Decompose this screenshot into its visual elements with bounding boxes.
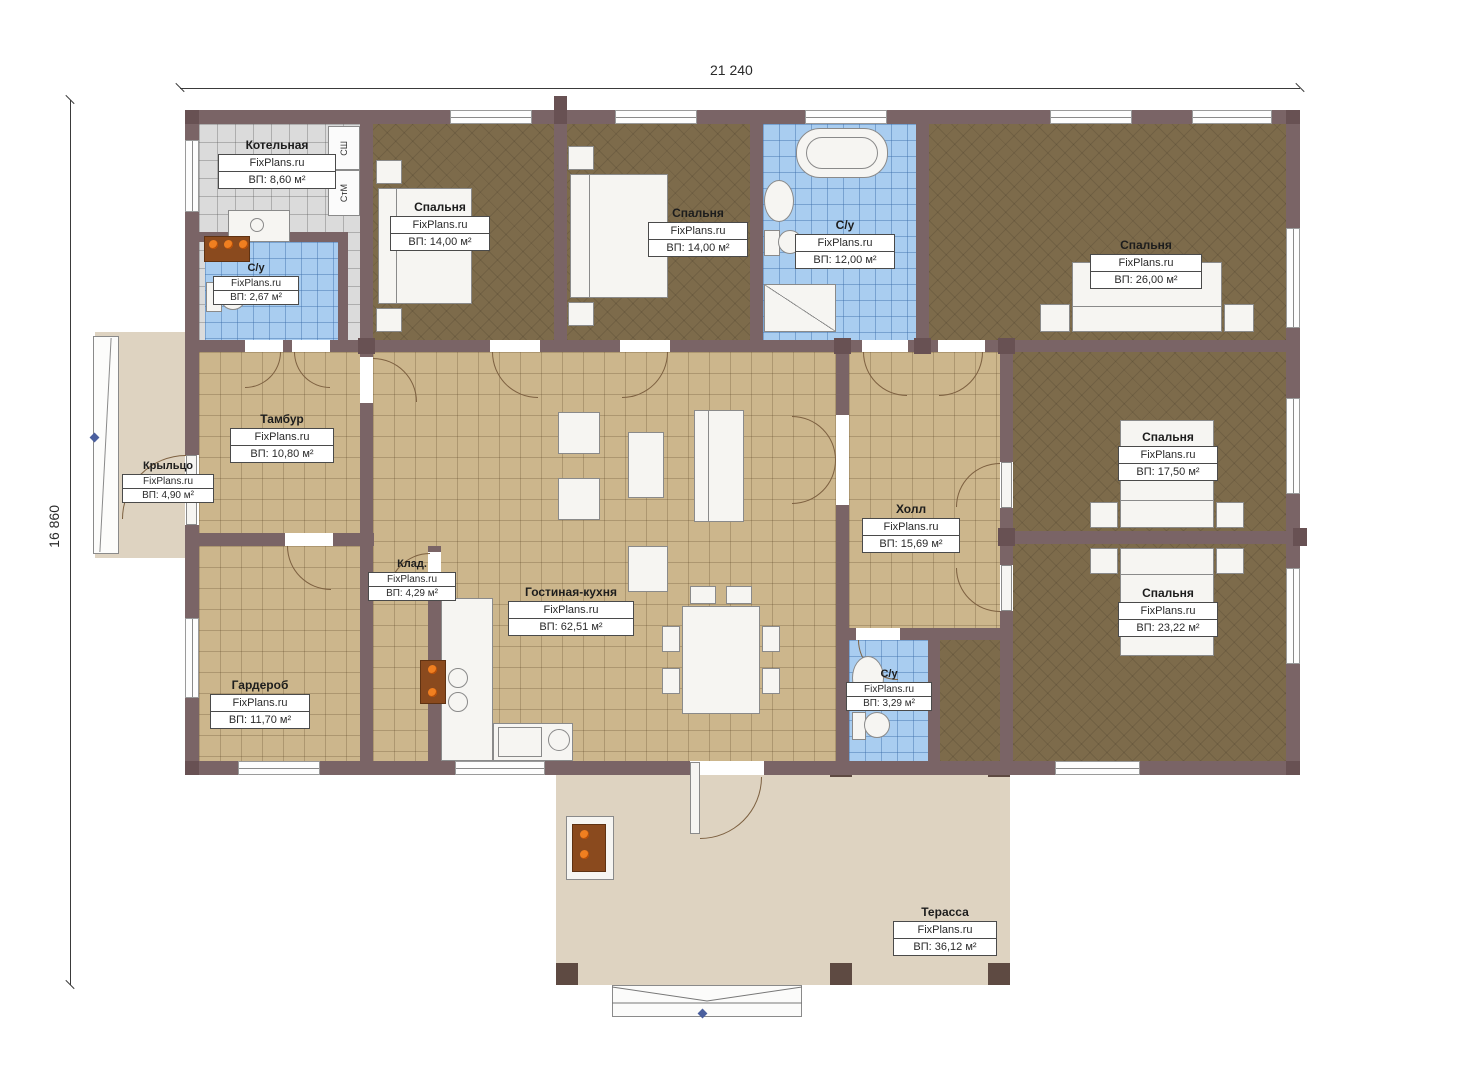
wall-post (1286, 110, 1300, 124)
wall-post (554, 96, 567, 124)
room-info-box: FixPlans.ru ВП: 26,00 м² (1090, 254, 1202, 289)
room-label-storage: Клад. FixPlans.ru ВП: 4,29 м² (368, 558, 456, 601)
room-label-terrace: Терасса FixPlans.ru ВП: 36,12 м² (893, 905, 997, 956)
room-name: Котельная (218, 138, 336, 152)
room-label-wc2: С/у FixPlans.ru ВП: 12,00 м² (795, 218, 895, 269)
bed-headboard-line (589, 175, 590, 297)
room-area: ВП: 17,50 м² (1119, 464, 1217, 480)
room-info-box: FixPlans.ru ВП: 10,80 м² (230, 428, 334, 463)
window (805, 110, 887, 124)
armchair (558, 412, 600, 454)
door-opening-double (836, 415, 849, 505)
dryer-label: СШ (339, 141, 349, 156)
room-label-living-kitchen: Гостиная-кухня FixPlans.ru ВП: 62,51 м² (508, 585, 634, 636)
nightstand (568, 302, 594, 326)
room-label-hall: Холл FixPlans.ru ВП: 15,69 м² (862, 502, 960, 553)
watermark: FixPlans.ru (219, 155, 335, 172)
fireplace-firebox (572, 824, 606, 872)
room-name: Холл (862, 502, 960, 516)
watermark: FixPlans.ru (847, 683, 931, 697)
room-name: Крыльцо (122, 460, 214, 472)
wall-post (834, 338, 851, 354)
room-info-box: FixPlans.ru ВП: 14,00 м² (648, 222, 748, 257)
chair (762, 626, 780, 652)
room-area: ВП: 14,00 м² (649, 240, 747, 256)
coffee-table (628, 432, 664, 498)
door-opening (490, 340, 540, 352)
room-area: ВП: 11,70 м² (211, 712, 309, 728)
door-leaf (1001, 565, 1012, 611)
door-opening (292, 340, 330, 352)
burner-dot (428, 665, 437, 674)
room-label-bedroom4: Спальня FixPlans.ru ВП: 17,50 м² (1118, 430, 1218, 481)
bed-headboard-line (1073, 306, 1221, 307)
wall-h-bedrooms-right (1000, 531, 1300, 544)
door-leaf (690, 762, 700, 834)
room-area: ВП: 14,00 м² (391, 234, 489, 250)
room-name: Тамбур (230, 412, 334, 426)
wall-v-wc2-bedroom3 (916, 110, 929, 352)
bed-headboard-line (1121, 574, 1213, 575)
room-area: ВП: 62,51 м² (509, 619, 633, 635)
nightstand (1090, 502, 1118, 528)
toilet (864, 712, 890, 738)
fire-glow (580, 850, 589, 859)
window (185, 140, 199, 212)
watermark: FixPlans.ru (214, 277, 298, 291)
burner-dot (224, 240, 233, 249)
room-label-bedroom5: Спальня FixPlans.ru ВП: 23,22 м² (1118, 586, 1218, 637)
door-opening (620, 340, 670, 352)
kitchen-sink-bowl (448, 668, 468, 688)
room-label-wc3: С/у FixPlans.ru ВП: 3,29 м² (846, 668, 932, 711)
room-info-box: FixPlans.ru ВП: 62,51 м² (508, 601, 634, 636)
washer-label: СтМ (339, 184, 349, 202)
watermark: FixPlans.ru (509, 602, 633, 619)
wall-h-tambour-wardrobe (185, 533, 374, 546)
watermark: FixPlans.ru (796, 235, 894, 252)
watermark: FixPlans.ru (369, 573, 455, 587)
hob (548, 729, 570, 751)
room-info-box: FixPlans.ru ВП: 2,67 м² (213, 276, 299, 305)
wall-post (185, 110, 199, 124)
room-area: ВП: 23,22 м² (1119, 620, 1217, 636)
nightstand (1216, 548, 1244, 574)
bathtub (796, 128, 888, 178)
room-area: ВП: 12,00 м² (796, 252, 894, 268)
room-name: Гостиная-кухня (508, 585, 634, 599)
room-area: ВП: 4,90 м² (123, 489, 213, 502)
room-label-bedroom2: Спальня FixPlans.ru ВП: 14,00 м² (648, 206, 748, 257)
room-info-box: FixPlans.ru ВП: 23,22 м² (1118, 602, 1218, 637)
shower-tray (764, 284, 836, 332)
room-name: Спальня (1090, 238, 1202, 252)
dimension-height-label: 16 860 (42, 505, 66, 548)
chair (662, 626, 680, 652)
room-area: ВП: 4,29 м² (369, 587, 455, 600)
wall-post (998, 528, 1015, 546)
sink (764, 180, 794, 222)
dimension-width-label: 21 240 (706, 62, 757, 78)
wall-post (998, 338, 1015, 354)
watermark: FixPlans.ru (231, 429, 333, 446)
door-opening (360, 357, 373, 403)
room-area: ВП: 10,80 м² (231, 446, 333, 462)
room-info-box: FixPlans.ru ВП: 11,70 м² (210, 694, 310, 729)
window (238, 761, 320, 775)
room-label-boiler: Котельная FixPlans.ru ВП: 8,60 м² (218, 138, 336, 189)
room-info-box: FixPlans.ru ВП: 36,12 м² (893, 921, 997, 956)
chair (726, 586, 752, 604)
room-info-box: FixPlans.ru ВП: 15,69 м² (862, 518, 960, 553)
wall-h-main (185, 340, 1300, 352)
watermark: FixPlans.ru (391, 217, 489, 234)
room-info-box: FixPlans.ru ВП: 4,29 м² (368, 572, 456, 601)
wall-wc1-right (338, 232, 348, 340)
room-name: С/у (846, 668, 932, 680)
room-area: ВП: 3,29 м² (847, 697, 931, 710)
room-area: ВП: 36,12 м² (894, 939, 996, 955)
window (1192, 110, 1272, 124)
window (1286, 398, 1300, 494)
wall-post (1293, 528, 1307, 546)
dimension-line-top (180, 88, 1300, 89)
nightstand (1224, 304, 1254, 332)
window (450, 110, 532, 124)
watermark: FixPlans.ru (863, 519, 959, 536)
armchair (558, 478, 600, 520)
nightstand (568, 146, 594, 170)
room-info-box: FixPlans.ru ВП: 8,60 м² (218, 154, 336, 189)
nightstand (376, 308, 402, 332)
watermark: FixPlans.ru (1119, 447, 1217, 464)
window (1055, 761, 1140, 775)
watermark: FixPlans.ru (211, 695, 309, 712)
door-opening (245, 340, 283, 352)
room-name: С/у (213, 262, 299, 274)
room-label-wc1: С/у FixPlans.ru ВП: 2,67 м² (213, 262, 299, 305)
wall-v-hall-bedrooms (1000, 340, 1013, 775)
wall-post (185, 761, 199, 775)
chair (690, 586, 716, 604)
wall-v-left-section (360, 110, 373, 775)
watermark: FixPlans.ru (894, 922, 996, 939)
room-info-box: FixPlans.ru ВП: 17,50 м² (1118, 446, 1218, 481)
room-area: ВП: 15,69 м² (863, 536, 959, 552)
wall-post (914, 338, 931, 354)
nightstand (1040, 304, 1070, 332)
fire-glow (580, 830, 589, 839)
door-opening (285, 533, 333, 546)
window (1050, 110, 1132, 124)
sofa (694, 410, 744, 522)
room-info-box: FixPlans.ru ВП: 3,29 м² (846, 682, 932, 711)
burner-dot (428, 688, 437, 697)
room-info-box: FixPlans.ru ВП: 14,00 м² (390, 216, 490, 251)
room-label-porch: Крыльцо FixPlans.ru ВП: 4,90 м² (122, 460, 214, 503)
room-label-tambour: Тамбур FixPlans.ru ВП: 10,80 м² (230, 412, 334, 463)
window (1286, 568, 1300, 664)
room-label-bedroom1: Спальня FixPlans.ru ВП: 14,00 м² (390, 200, 490, 251)
room-area: ВП: 26,00 м² (1091, 272, 1201, 288)
kitchen-sink-bowl (448, 692, 468, 712)
watermark: FixPlans.ru (649, 223, 747, 240)
door-opening (862, 340, 908, 352)
nightstand (376, 160, 402, 184)
wall-post (1286, 761, 1300, 775)
boiler-gauge (250, 218, 264, 232)
watermark: FixPlans.ru (1091, 255, 1201, 272)
room-label-wardrobe: Гардероб FixPlans.ru ВП: 11,70 м² (210, 678, 310, 729)
door-opening (856, 628, 900, 640)
room-name: Спальня (1118, 586, 1218, 600)
room-area: ВП: 8,60 м² (219, 172, 335, 188)
window (455, 761, 545, 775)
chair (762, 668, 780, 694)
wall-v-bedroom2-wc2 (750, 110, 763, 352)
room-name: Гардероб (210, 678, 310, 692)
dimension-line-left (70, 100, 71, 985)
room-name: Спальня (1118, 430, 1218, 444)
window (1286, 228, 1300, 328)
door-leaf (1001, 462, 1012, 508)
watermark: FixPlans.ru (1119, 603, 1217, 620)
sofa-line (708, 411, 709, 521)
burner-dot (209, 240, 218, 249)
porch-steps (93, 336, 119, 554)
dishwasher (498, 727, 542, 757)
terrace-post (556, 963, 578, 985)
bed-headboard-line (1121, 500, 1213, 501)
floor-plan: 21 240 16 860 (0, 0, 1474, 1080)
wall-post (358, 338, 375, 354)
window (615, 110, 697, 124)
room-info-box: FixPlans.ru ВП: 12,00 м² (795, 234, 895, 269)
wall-exterior-top (185, 110, 1300, 124)
terrace-post (830, 963, 852, 985)
door-opening (938, 340, 985, 352)
room-name: Спальня (648, 206, 748, 220)
room-name: Терасса (893, 905, 997, 919)
chair (662, 668, 680, 694)
nightstand (1090, 548, 1118, 574)
tv-stand (628, 546, 668, 592)
burner-dot (239, 240, 248, 249)
window (185, 618, 199, 698)
wall-v-bedroom1-2 (554, 110, 567, 352)
room-area: ВП: 2,67 м² (214, 291, 298, 304)
room-name: С/у (795, 218, 895, 232)
dining-table (682, 606, 760, 714)
watermark: FixPlans.ru (123, 475, 213, 489)
door-opening-terrace (690, 761, 764, 775)
room-label-bedroom3: Спальня FixPlans.ru ВП: 26,00 м² (1090, 238, 1202, 289)
terrace-post (988, 963, 1010, 985)
room-name: Спальня (390, 200, 490, 214)
bedroom5-annex-floor (940, 640, 1000, 761)
room-name: Клад. (368, 558, 456, 570)
nightstand (1216, 502, 1244, 528)
room-info-box: FixPlans.ru ВП: 4,90 м² (122, 474, 214, 503)
